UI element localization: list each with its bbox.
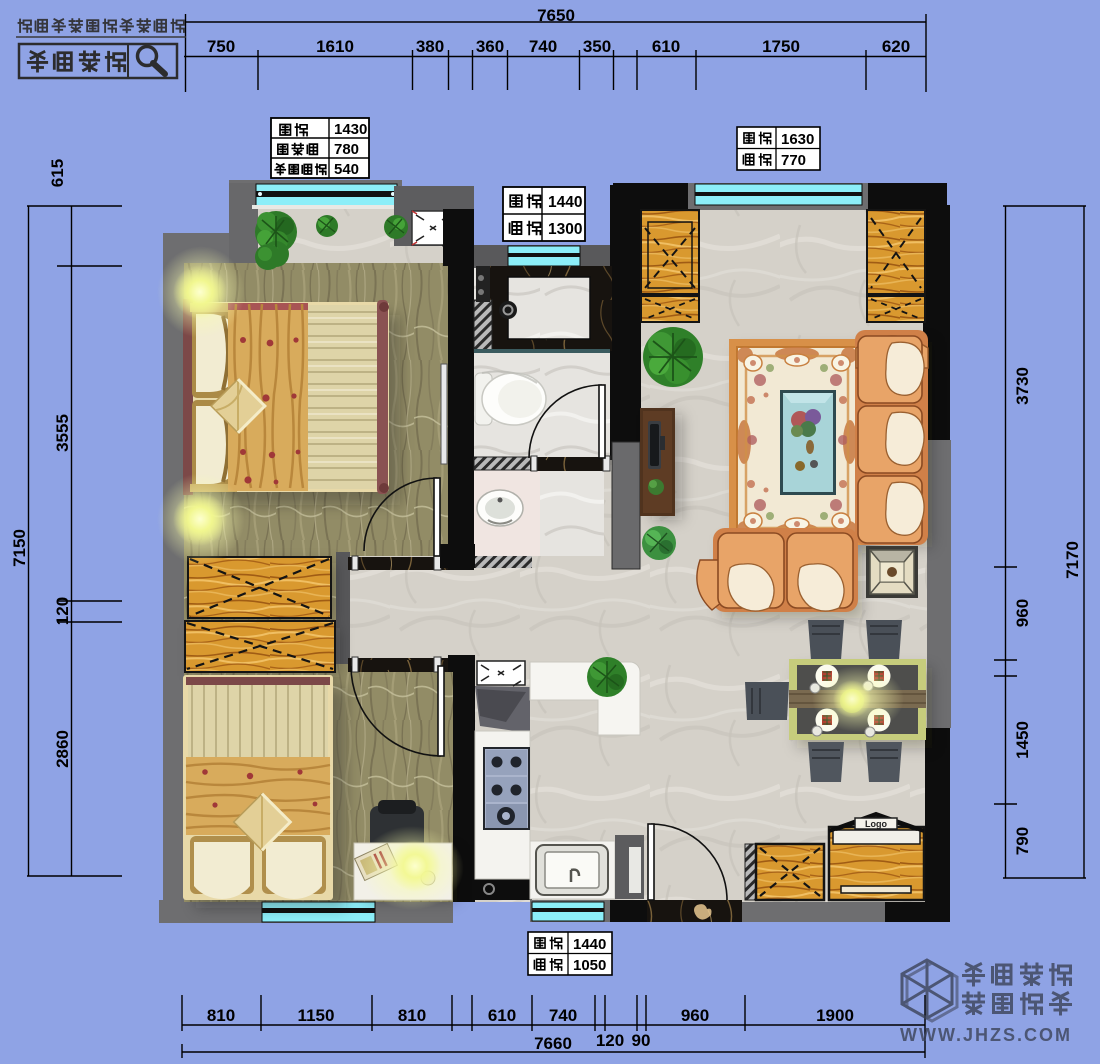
svg-text:615: 615 xyxy=(48,159,67,187)
svg-text:1440: 1440 xyxy=(573,936,606,953)
svg-text:1450: 1450 xyxy=(1013,721,1032,759)
svg-text:7150: 7150 xyxy=(10,529,29,567)
svg-text:7660: 7660 xyxy=(534,1034,572,1053)
svg-text:770: 770 xyxy=(781,152,806,169)
svg-text:90: 90 xyxy=(632,1031,651,1050)
svg-text:2860: 2860 xyxy=(53,730,72,768)
svg-text:120: 120 xyxy=(53,597,72,625)
svg-text:810: 810 xyxy=(207,1006,235,1025)
svg-text:7170: 7170 xyxy=(1063,541,1082,579)
svg-text:Logo: Logo xyxy=(865,819,887,829)
svg-text:620: 620 xyxy=(882,37,910,56)
svg-text:1750: 1750 xyxy=(762,37,800,56)
svg-text:790: 790 xyxy=(1013,827,1032,855)
svg-text:1630: 1630 xyxy=(781,131,814,148)
svg-text:3555: 3555 xyxy=(53,414,72,452)
svg-text:380: 380 xyxy=(416,37,444,56)
svg-text:960: 960 xyxy=(681,1006,709,1025)
svg-text:1430: 1430 xyxy=(334,121,367,138)
svg-text:1150: 1150 xyxy=(298,1006,335,1025)
svg-text:1300: 1300 xyxy=(548,221,582,238)
svg-text:740: 740 xyxy=(529,37,557,56)
svg-text:1610: 1610 xyxy=(316,37,354,56)
svg-text:120: 120 xyxy=(596,1031,624,1050)
svg-text:1050: 1050 xyxy=(573,957,606,974)
svg-text:3730: 3730 xyxy=(1013,367,1032,405)
svg-text:610: 610 xyxy=(652,37,680,56)
svg-text:350: 350 xyxy=(583,37,611,56)
svg-text:810: 810 xyxy=(398,1006,426,1025)
svg-text:360: 360 xyxy=(476,37,504,56)
svg-text:960: 960 xyxy=(1013,599,1032,627)
svg-text:540: 540 xyxy=(334,161,359,178)
svg-text:750: 750 xyxy=(207,37,235,56)
svg-text:WWW.JHZS.COM: WWW.JHZS.COM xyxy=(900,1025,1072,1045)
svg-text:780: 780 xyxy=(334,141,359,158)
svg-text:7650: 7650 xyxy=(537,6,575,25)
svg-text:610: 610 xyxy=(488,1006,516,1025)
svg-text:1440: 1440 xyxy=(548,194,582,211)
svg-text:740: 740 xyxy=(549,1006,577,1025)
svg-text:1900: 1900 xyxy=(816,1006,854,1025)
